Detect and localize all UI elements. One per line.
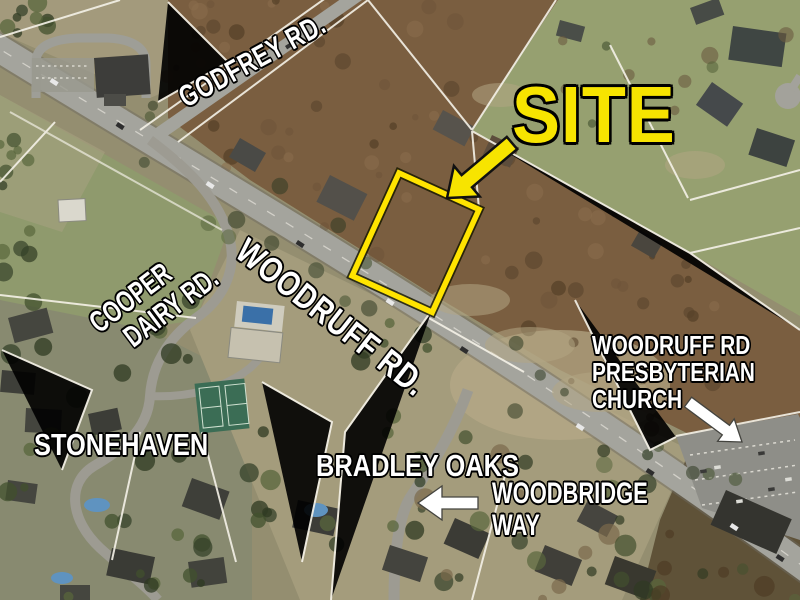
tree — [407, 21, 424, 38]
tree — [7, 133, 21, 147]
tree — [568, 282, 584, 298]
tree — [13, 241, 29, 257]
tree — [144, 578, 159, 593]
tree — [701, 47, 718, 64]
tree — [429, 111, 439, 121]
woodbridge-line1: WOODBRIDGE — [492, 478, 648, 510]
tree — [551, 281, 566, 296]
tree — [320, 515, 336, 531]
tree — [684, 307, 695, 318]
tree — [526, 184, 543, 201]
tree — [697, 568, 708, 579]
tree — [387, 520, 399, 532]
tree — [709, 301, 719, 311]
tree — [637, 297, 649, 309]
tree — [193, 538, 212, 557]
tree — [361, 300, 377, 316]
tree — [139, 157, 150, 168]
tree — [552, 579, 567, 594]
tree — [379, 79, 390, 90]
tree — [24, 225, 35, 236]
tree — [114, 364, 132, 382]
tree — [533, 217, 540, 224]
tennis-courts — [195, 379, 250, 434]
tree — [718, 567, 729, 578]
church-line2: PRESBYTERIAN — [592, 359, 755, 386]
tree — [507, 403, 523, 419]
tree — [412, 114, 418, 120]
tree — [228, 211, 246, 229]
tree — [578, 546, 592, 560]
tree — [330, 218, 346, 234]
tree — [20, 483, 28, 491]
church-parking — [32, 58, 94, 92]
tree — [505, 266, 519, 280]
church-line3: CHURCH — [592, 386, 755, 413]
tree — [441, 569, 453, 581]
tree — [161, 343, 182, 364]
tree — [258, 426, 269, 437]
woodbridge-line2: WAY — [492, 510, 648, 542]
tree — [421, 0, 436, 14]
tree — [401, 192, 412, 203]
tree — [206, 20, 220, 34]
tree — [729, 473, 742, 486]
tree — [525, 251, 543, 269]
house-roof — [104, 94, 126, 106]
tree — [207, 0, 215, 8]
tree — [455, 573, 464, 582]
tree — [707, 61, 719, 73]
tree — [30, 12, 43, 25]
pool — [84, 498, 110, 512]
tree — [389, 122, 397, 130]
club-pool — [242, 306, 274, 325]
tree — [385, 318, 395, 328]
tree — [578, 207, 592, 221]
tree — [634, 581, 654, 600]
tree — [647, 37, 655, 45]
barn-shed — [58, 199, 86, 222]
tree — [657, 561, 672, 576]
woodbridge-way-label: WOODBRIDGE WAY — [492, 478, 648, 542]
tree — [183, 354, 193, 364]
pool — [51, 572, 73, 584]
tree — [262, 507, 272, 517]
tree — [596, 456, 613, 473]
tree — [364, 155, 379, 170]
tree — [189, 0, 199, 10]
house-roof — [94, 54, 151, 98]
church-label: WOODRUFF RD PRESBYTERIAN CHURCH — [592, 332, 755, 413]
tree — [272, 178, 289, 195]
tree — [313, 183, 322, 192]
tree — [737, 563, 748, 574]
tree — [105, 514, 120, 529]
tree — [509, 336, 524, 351]
tree — [558, 36, 567, 45]
tree — [240, 463, 259, 482]
tree — [16, 5, 28, 17]
tree — [25, 293, 43, 311]
tree — [183, 568, 197, 582]
tree — [444, 81, 460, 97]
tree — [617, 281, 628, 292]
tree — [284, 152, 294, 162]
tree — [197, 579, 205, 587]
tree — [422, 343, 432, 353]
bradley-oaks-label: BRADLEY OAKS — [316, 449, 519, 482]
tree — [754, 576, 775, 597]
tree — [535, 370, 546, 381]
tree — [34, 338, 52, 356]
tree — [136, 569, 145, 578]
tree — [6, 150, 16, 160]
tree — [591, 210, 606, 225]
tree — [261, 119, 277, 135]
tree — [481, 255, 490, 264]
tree — [376, 172, 383, 179]
tree — [369, 139, 378, 148]
tree — [271, 146, 285, 160]
tree — [560, 388, 569, 397]
tree — [447, 13, 464, 30]
tree — [171, 528, 184, 541]
tree — [405, 521, 424, 540]
stonehaven-label: STONEHAVEN — [34, 428, 208, 461]
tree — [221, 229, 236, 244]
tree — [335, 53, 351, 69]
tree — [597, 445, 610, 458]
tree — [311, 101, 322, 112]
tree — [470, 511, 490, 531]
tree — [778, 27, 793, 42]
tree — [614, 572, 630, 588]
tree — [208, 120, 220, 132]
tree — [671, 274, 684, 287]
church-line1: WOODRUFF RD — [592, 332, 755, 359]
tree — [219, 42, 230, 53]
aerial-site-map: GODFREY RD. SITE WOODRUFF RD. COOPER DAI… — [0, 0, 800, 600]
tree — [260, 470, 280, 490]
tree — [148, 101, 158, 111]
tree — [527, 551, 546, 570]
tree — [642, 449, 653, 460]
tree — [587, 567, 597, 577]
tree — [686, 466, 700, 480]
tree — [400, 152, 411, 163]
tree — [459, 430, 473, 444]
site-label: SITE — [512, 72, 676, 158]
tree — [285, 128, 293, 136]
tree — [588, 243, 604, 259]
tree — [678, 75, 691, 88]
tree — [518, 455, 533, 470]
tree — [665, 530, 674, 539]
tree — [229, 24, 245, 40]
tree — [685, 276, 692, 283]
